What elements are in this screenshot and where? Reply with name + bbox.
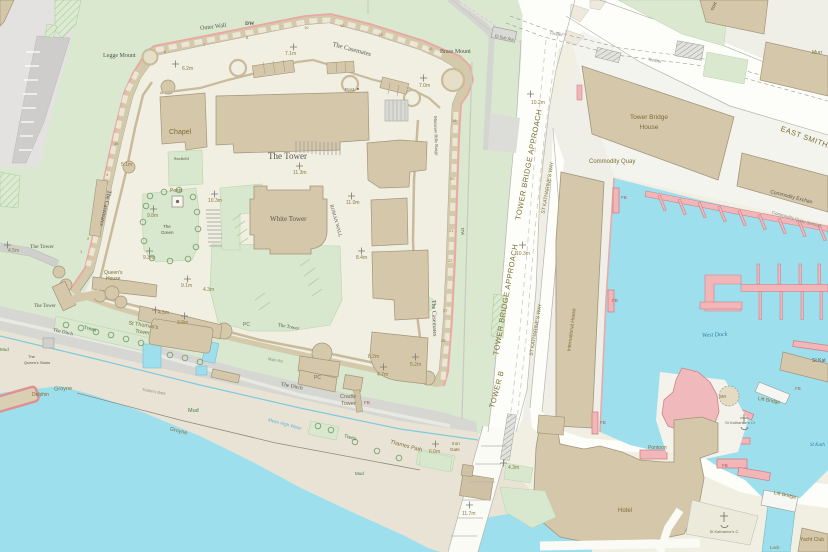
svg-text:8.4m: 8.4m <box>356 255 367 261</box>
svg-text:9.3m: 9.3m <box>143 255 154 261</box>
svg-text:12: 12 <box>340 23 345 28</box>
svg-text:The: The <box>28 354 36 359</box>
svg-text:4.7m: 4.7m <box>377 372 388 378</box>
svg-text:PC: PC <box>243 322 250 328</box>
svg-text:3.8m: 3.8m <box>177 320 188 326</box>
svg-text:FB: FB <box>364 400 370 405</box>
svg-text:4.3m: 4.3m <box>508 465 519 471</box>
svg-text:White Tower: White Tower <box>270 215 307 223</box>
svg-text:Commodity Quay: Commodity Quay <box>589 159 635 165</box>
svg-text:Gate: Gate <box>450 447 460 452</box>
svg-text:11.0m: 11.0m <box>346 200 360 206</box>
svg-text:St Kath: St Kath <box>810 443 825 448</box>
svg-text:FB: FB <box>722 463 728 468</box>
svg-text:Brass Mount: Brass Mount <box>440 49 471 55</box>
svg-text:21: 21 <box>449 228 454 233</box>
svg-text:FB: FB <box>621 195 627 200</box>
svg-text:Mud: Mud <box>188 408 199 414</box>
svg-text:10.2m: 10.2m <box>531 100 545 106</box>
svg-text:Posts: Posts <box>170 188 183 194</box>
svg-text:28: 28 <box>441 338 446 343</box>
svg-text:Groyne: Groyne <box>54 386 72 393</box>
svg-text:PC: PC <box>314 375 321 381</box>
svg-text:10: 10 <box>304 25 309 30</box>
svg-text:Post: Post <box>345 87 355 92</box>
svg-text:Mud: Mud <box>355 471 364 476</box>
svg-text:Queen's Stairs: Queen's Stairs <box>24 360 50 365</box>
svg-text:5.1m: 5.1m <box>121 162 132 168</box>
svg-text:St Katharine's C: St Katharine's C <box>710 529 739 534</box>
svg-text:Yacht Club: Yacht Club <box>800 537 824 543</box>
svg-text:Murr: Murr <box>812 50 823 56</box>
svg-text:The Tower: The Tower <box>30 244 54 250</box>
svg-text:4.5m: 4.5m <box>158 310 169 316</box>
svg-text:Dolphin: Dolphin <box>32 392 49 398</box>
svg-text:Legge Mount: Legge Mount <box>103 53 136 59</box>
svg-text:7.0m: 7.0m <box>419 83 430 89</box>
svg-text:16: 16 <box>428 46 433 51</box>
svg-text:The: The <box>163 224 171 229</box>
svg-text:Chapel: Chapel <box>169 129 192 136</box>
svg-text:10.3m: 10.3m <box>208 198 222 204</box>
svg-text:7.1m: 7.1m <box>285 51 296 57</box>
svg-text:8.2m: 8.2m <box>368 354 379 360</box>
svg-text:FB: FB <box>795 386 801 391</box>
svg-text:18: 18 <box>452 118 457 123</box>
svg-text:22: 22 <box>448 258 453 263</box>
svg-text:Green: Green <box>161 230 174 235</box>
svg-text:4.5m: 4.5m <box>8 248 19 254</box>
svg-text:Hotel: Hotel <box>618 508 632 514</box>
svg-text:20: 20 <box>450 176 455 181</box>
svg-text:House: House <box>106 276 121 282</box>
svg-text:11.3m: 11.3m <box>293 170 307 176</box>
svg-text:Pontoon: Pontoon <box>648 445 667 451</box>
svg-text:Seafield: Seafield <box>174 156 189 161</box>
svg-text:13: 13 <box>378 32 383 37</box>
svg-text:St Kat: St Kat <box>812 358 826 364</box>
svg-text:Tower: Tower <box>341 401 356 407</box>
svg-text:House: House <box>640 124 659 131</box>
svg-text:9.1m: 9.1m <box>181 283 192 289</box>
svg-text:FB: FB <box>600 420 606 425</box>
svg-text:Mud: Mud <box>0 347 9 352</box>
svg-text:9.8m: 9.8m <box>147 213 158 219</box>
svg-text:4.3m: 4.3m <box>203 287 214 293</box>
svg-text:St Katharine's Cr: St Katharine's Cr <box>725 420 756 425</box>
svg-text:Cradle: Cradle <box>340 394 356 400</box>
svg-text:Tower Bridge: Tower Bridge <box>630 114 668 121</box>
svg-text:FB: FB <box>612 298 618 303</box>
svg-text:The Tower: The Tower <box>268 151 307 161</box>
svg-text:Lock: Lock <box>770 545 780 550</box>
svg-text:45: 45 <box>114 141 119 146</box>
svg-text:5.2m: 5.2m <box>410 362 421 368</box>
svg-text:6.0m: 6.0m <box>429 449 440 455</box>
svg-text:DW: DW <box>245 21 255 27</box>
svg-text:SM: SM <box>719 394 726 399</box>
svg-text:Iron: Iron <box>452 441 460 446</box>
svg-text:6.2m: 6.2m <box>182 66 193 72</box>
svg-text:11.7m: 11.7m <box>462 511 476 517</box>
svg-text:DW: DW <box>460 228 465 236</box>
svg-text:27: 27 <box>443 308 448 313</box>
svg-text:The Tower: The Tower <box>34 304 56 309</box>
